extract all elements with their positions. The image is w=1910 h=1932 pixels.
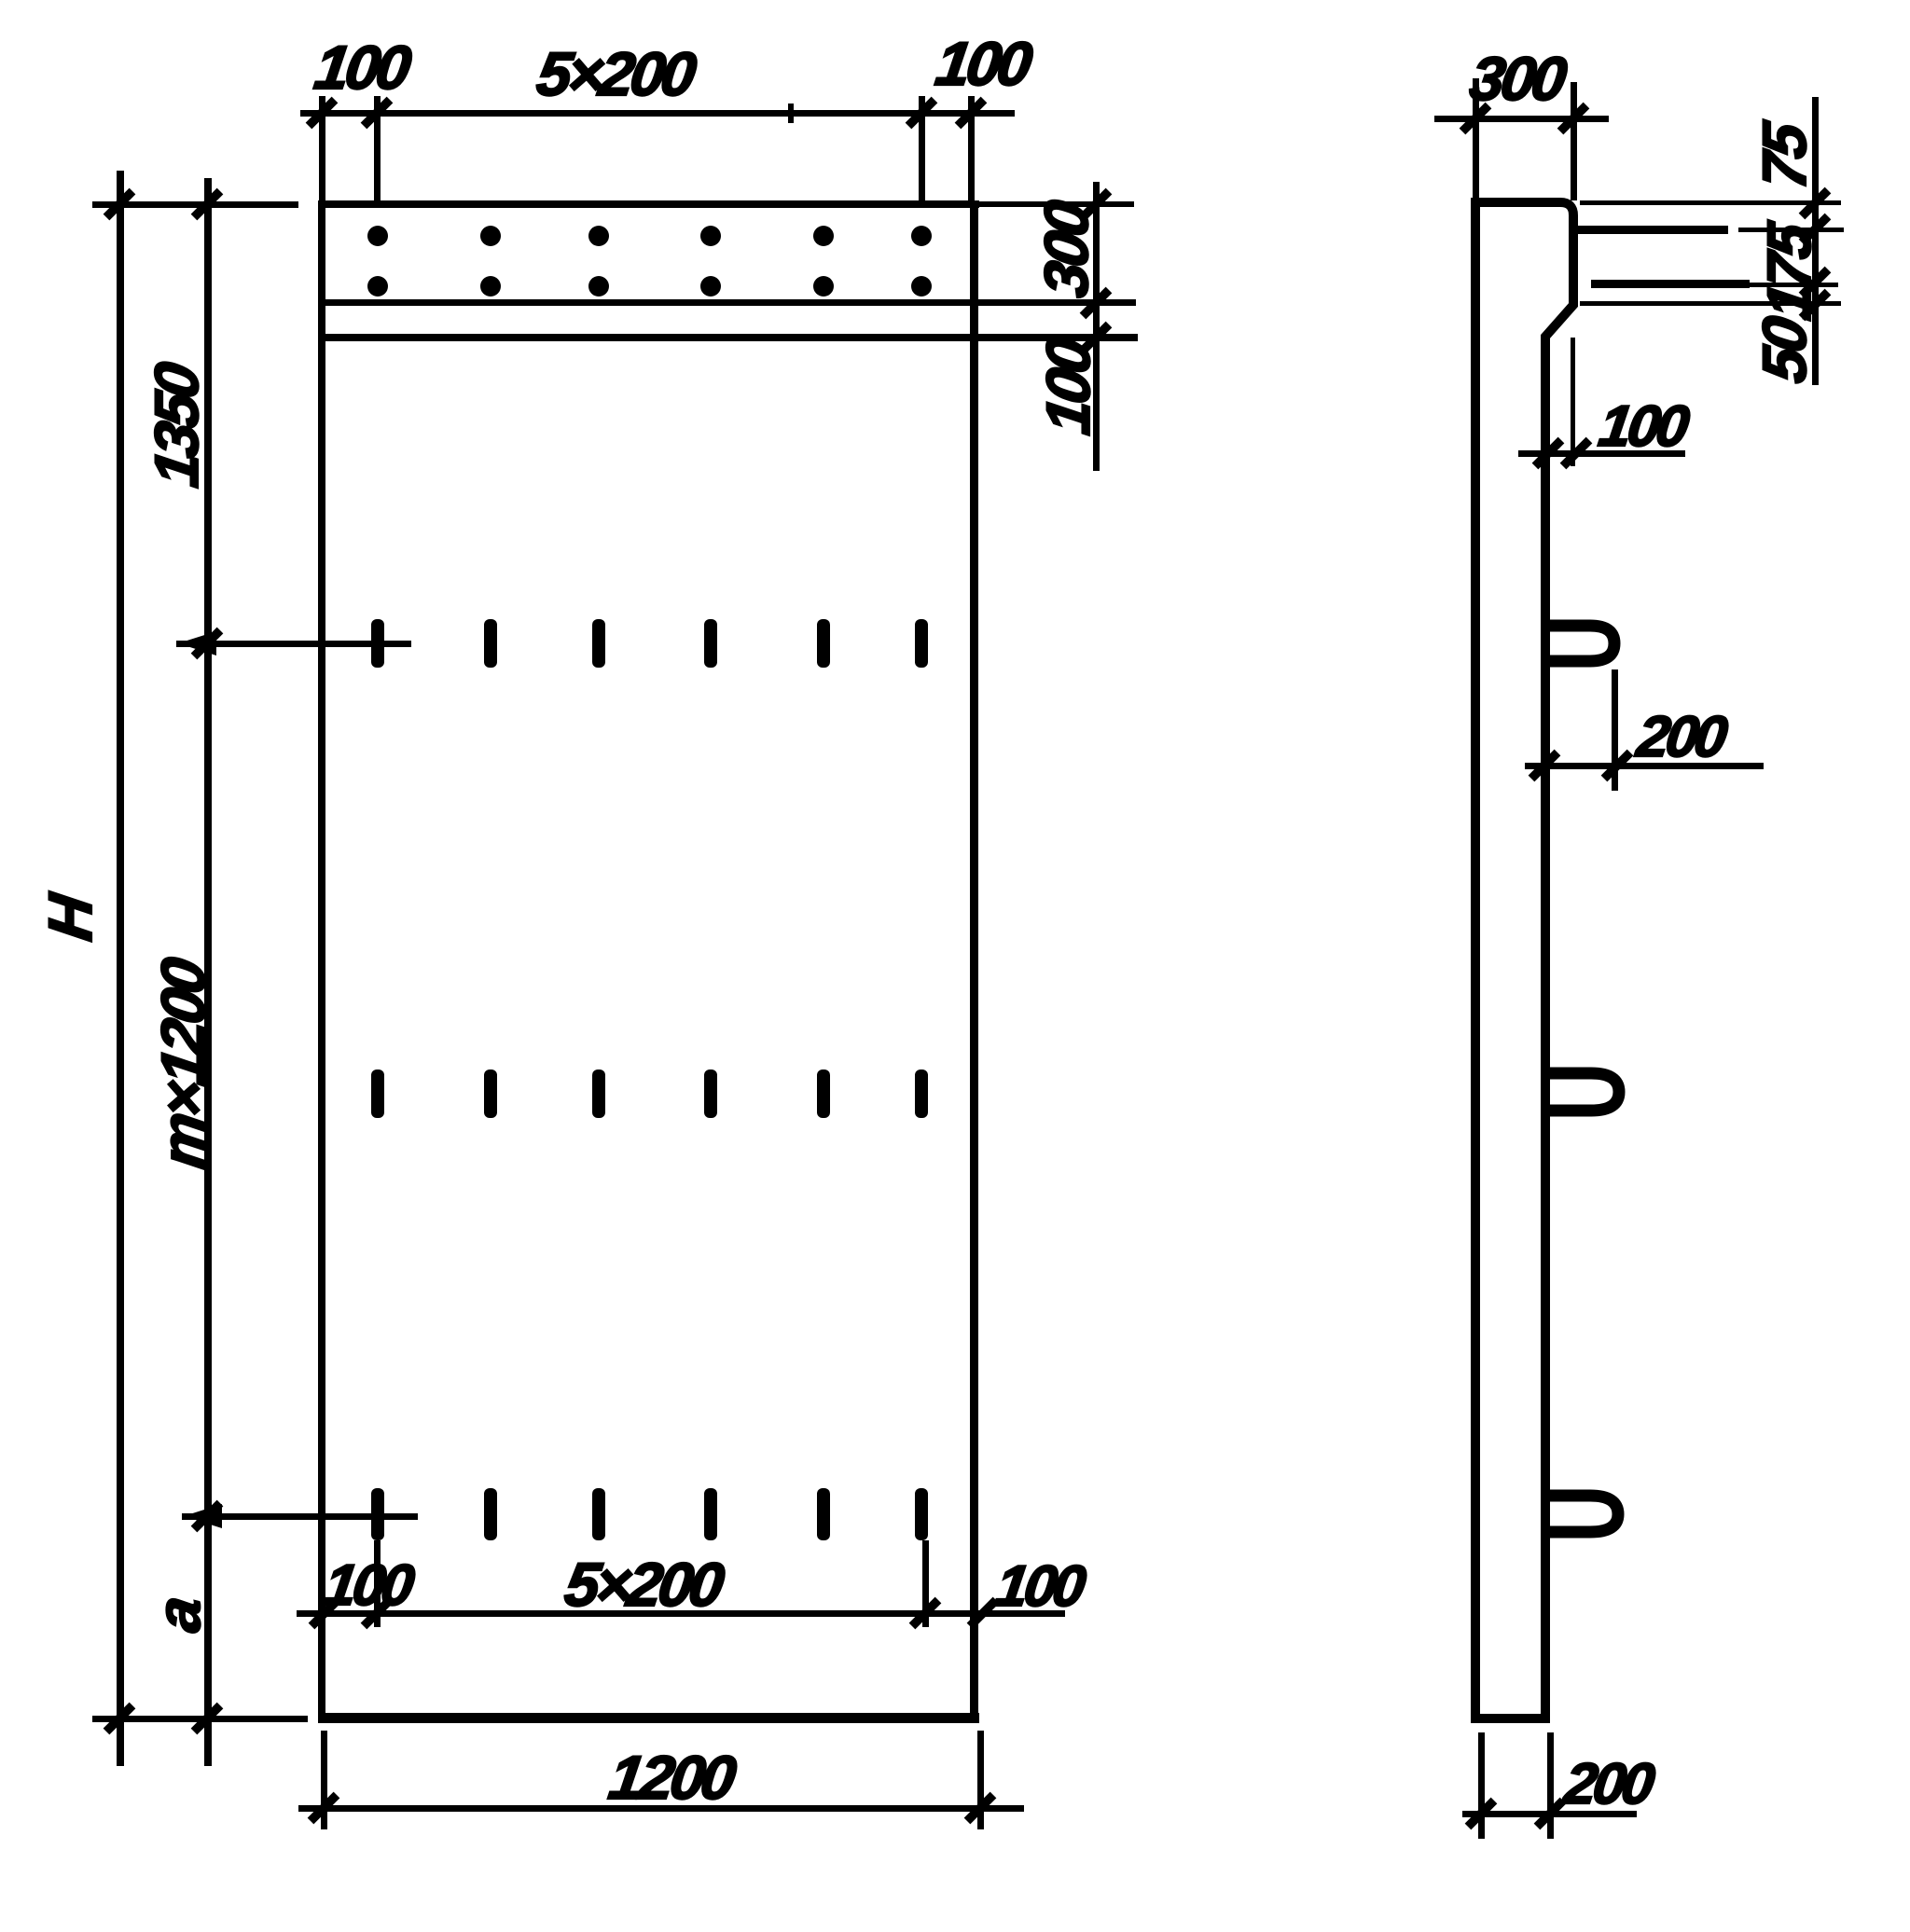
svg-text:100: 100 xyxy=(320,1553,418,1618)
svg-text:1200: 1200 xyxy=(604,1744,740,1813)
svg-text:175: 175 xyxy=(1755,218,1824,324)
svg-text:200: 200 xyxy=(1632,705,1731,769)
svg-text:100: 100 xyxy=(1595,394,1693,459)
svg-text:100: 100 xyxy=(932,30,1037,99)
svg-text:100: 100 xyxy=(1034,334,1103,439)
svg-text:200: 200 xyxy=(1559,1752,1658,1816)
svg-text:100: 100 xyxy=(311,34,416,103)
svg-text:5×200: 5×200 xyxy=(533,40,700,109)
svg-text:m×1200: m×1200 xyxy=(149,954,218,1172)
svg-text:100: 100 xyxy=(991,1554,1089,1619)
svg-text:300: 300 xyxy=(1466,45,1571,114)
svg-text:5×200: 5×200 xyxy=(561,1551,728,1620)
svg-text:1350: 1350 xyxy=(143,358,212,490)
svg-text:300: 300 xyxy=(1032,197,1101,302)
